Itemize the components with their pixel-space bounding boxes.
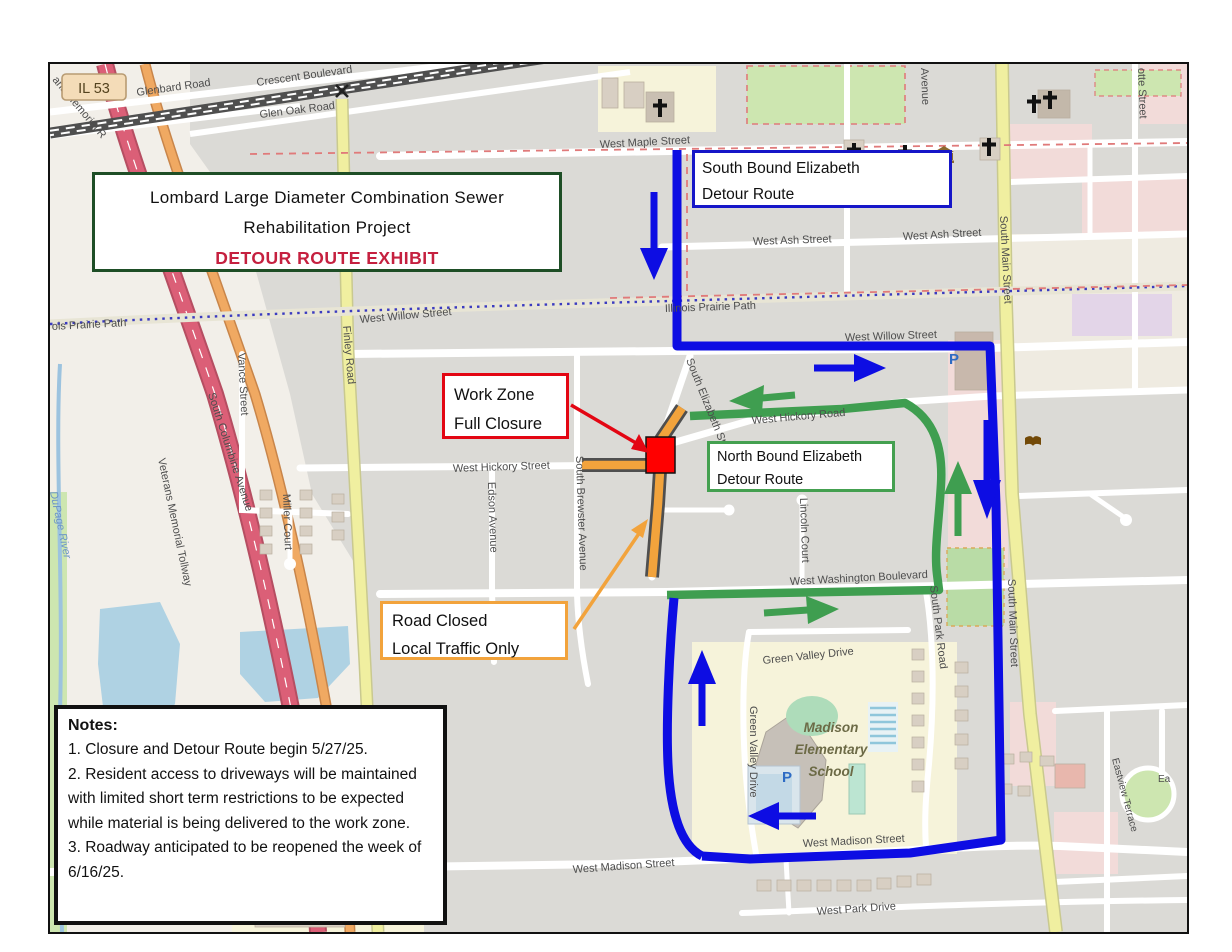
school-name-line: School	[808, 764, 853, 779]
route-shield-label: IL 53	[78, 81, 110, 97]
note-item-3: 3. Roadway anticipated to be reopened th…	[68, 836, 433, 885]
work-zone-label-line1: Work Zone	[454, 381, 557, 410]
road-closed-label-box: Road Closed Local Traffic Only	[380, 601, 568, 660]
school-name-line: Madison	[804, 720, 859, 735]
northbound-label-line2: Detour Route	[717, 469, 885, 492]
notes-heading: Notes:	[68, 713, 433, 738]
large-building-area	[1072, 294, 1172, 336]
southbound-detour-label-box: South Bound Elizabeth Detour Route	[692, 150, 952, 208]
map-canvas: Glenbard Road Crescent Boulevard Glen Oa…	[48, 62, 1189, 934]
street-label: Ea	[1158, 774, 1171, 785]
work-zone-label-box: Work Zone Full Closure	[442, 373, 569, 439]
southbound-label-line2: Detour Route	[702, 182, 942, 208]
project-title-line1: Lombard Large Diameter Combination Sewer	[95, 183, 559, 213]
parking-icon: P	[782, 769, 792, 786]
il53-route-shield: IL 53	[62, 74, 126, 100]
work-zone-label-line2: Full Closure	[454, 410, 557, 439]
northbound-detour-label-box: North Bound Elizabeth Detour Route	[707, 441, 895, 492]
exhibit-title-box: Lombard Large Diameter Combination Sewer…	[92, 172, 562, 272]
street-label: Green Valley Drive	[747, 706, 759, 798]
street-label: Miller Court	[280, 494, 294, 551]
work-zone-closure-marker	[646, 437, 675, 473]
school-name-line: Elementary	[795, 742, 869, 757]
exhibit-subtitle: DETOUR ROUTE EXHIBIT	[95, 243, 559, 275]
southbound-label-line1: South Bound Elizabeth	[702, 156, 942, 182]
note-item-1: 1. Closure and Detour Route begin 5/27/2…	[68, 738, 433, 762]
street-label: otte Street	[1135, 68, 1149, 119]
street-label: Lincoln Court	[797, 498, 811, 563]
parking-icon: P	[949, 351, 959, 368]
project-title-line2: Rehabilitation Project	[95, 213, 559, 243]
road-closed-label-line1: Road Closed	[392, 607, 556, 635]
road-closed-label-line2: Local Traffic Only	[392, 635, 556, 663]
northbound-label-line1: North Bound Elizabeth	[717, 446, 885, 469]
note-item-2: 2. Resident access to driveways will be …	[68, 763, 433, 836]
street-label: Avenue	[918, 68, 931, 106]
detour-exhibit-page: Glenbard Road Crescent Boulevard Glen Oa…	[0, 0, 1232, 952]
street-label: Edson Avenue	[485, 482, 499, 553]
notes-box: Notes: 1. Closure and Detour Route begin…	[54, 705, 447, 925]
